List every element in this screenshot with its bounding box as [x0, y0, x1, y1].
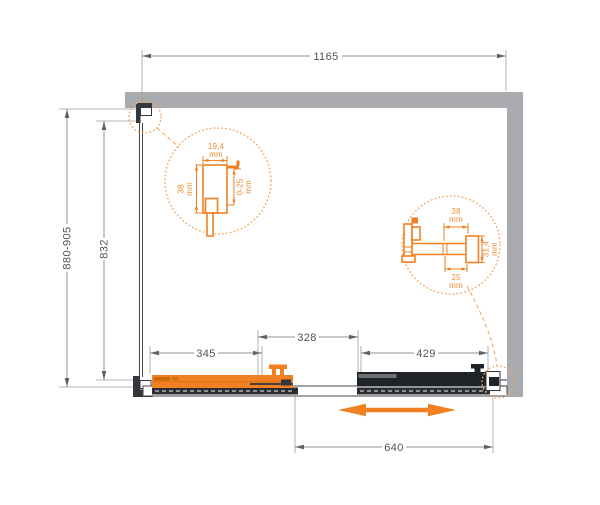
dim-label-glass-height: 832: [99, 239, 111, 259]
detail-right-drawing: 38 mm 25 mm 31,4 mm: [402, 207, 499, 290]
detail-right-rail: [412, 244, 466, 255]
dimension-glass-height: 832: [96, 121, 141, 380]
door-handle: [269, 365, 287, 376]
dim-label-door-panel: 345: [196, 348, 216, 360]
dim-label-fixed-panel: 429: [416, 348, 436, 360]
detail-left-depth-unit: mm: [185, 182, 194, 196]
dim-label-overlap: 328: [297, 332, 317, 344]
door-roller-block: [281, 380, 291, 386]
drawing-canvas: 1165 880-905 832 345 328 429: [0, 0, 600, 505]
callout-leader-left: [157, 128, 179, 147]
dim-label-height-range: 880-905: [62, 226, 74, 269]
technical-drawing: 1165 880-905 832 345 328 429: [0, 0, 600, 505]
detail-left-glass: [207, 213, 213, 236]
wall-profile-top-left: [136, 103, 152, 123]
wall-right: [507, 92, 523, 397]
fixed-panel: [357, 364, 488, 387]
fixed-panel-bracket-knob: [471, 364, 484, 369]
wall-top: [125, 92, 523, 108]
slide-direction-arrow-icon: [338, 404, 456, 416]
dim-label-width-total: 1165: [313, 51, 338, 63]
detail-right-width-unit: mm: [449, 215, 463, 224]
side-glass-panel: [140, 123, 143, 377]
sliding-door: [152, 365, 293, 389]
detail-right-block: [466, 236, 479, 263]
detail-left-drawing: 19,4 mm 38 mm 0-25 mm: [177, 142, 254, 236]
dim-label-slide-travel: 640: [384, 442, 404, 454]
detail-right-height-unit: mm: [490, 242, 499, 256]
detail-left-width-unit: mm: [209, 150, 223, 159]
detail-left-adjust-unit: mm: [244, 180, 253, 194]
detail-right-offset-unit: mm: [449, 281, 463, 290]
walls: [125, 92, 523, 397]
dimension-slide-travel: 640: [295, 390, 493, 454]
